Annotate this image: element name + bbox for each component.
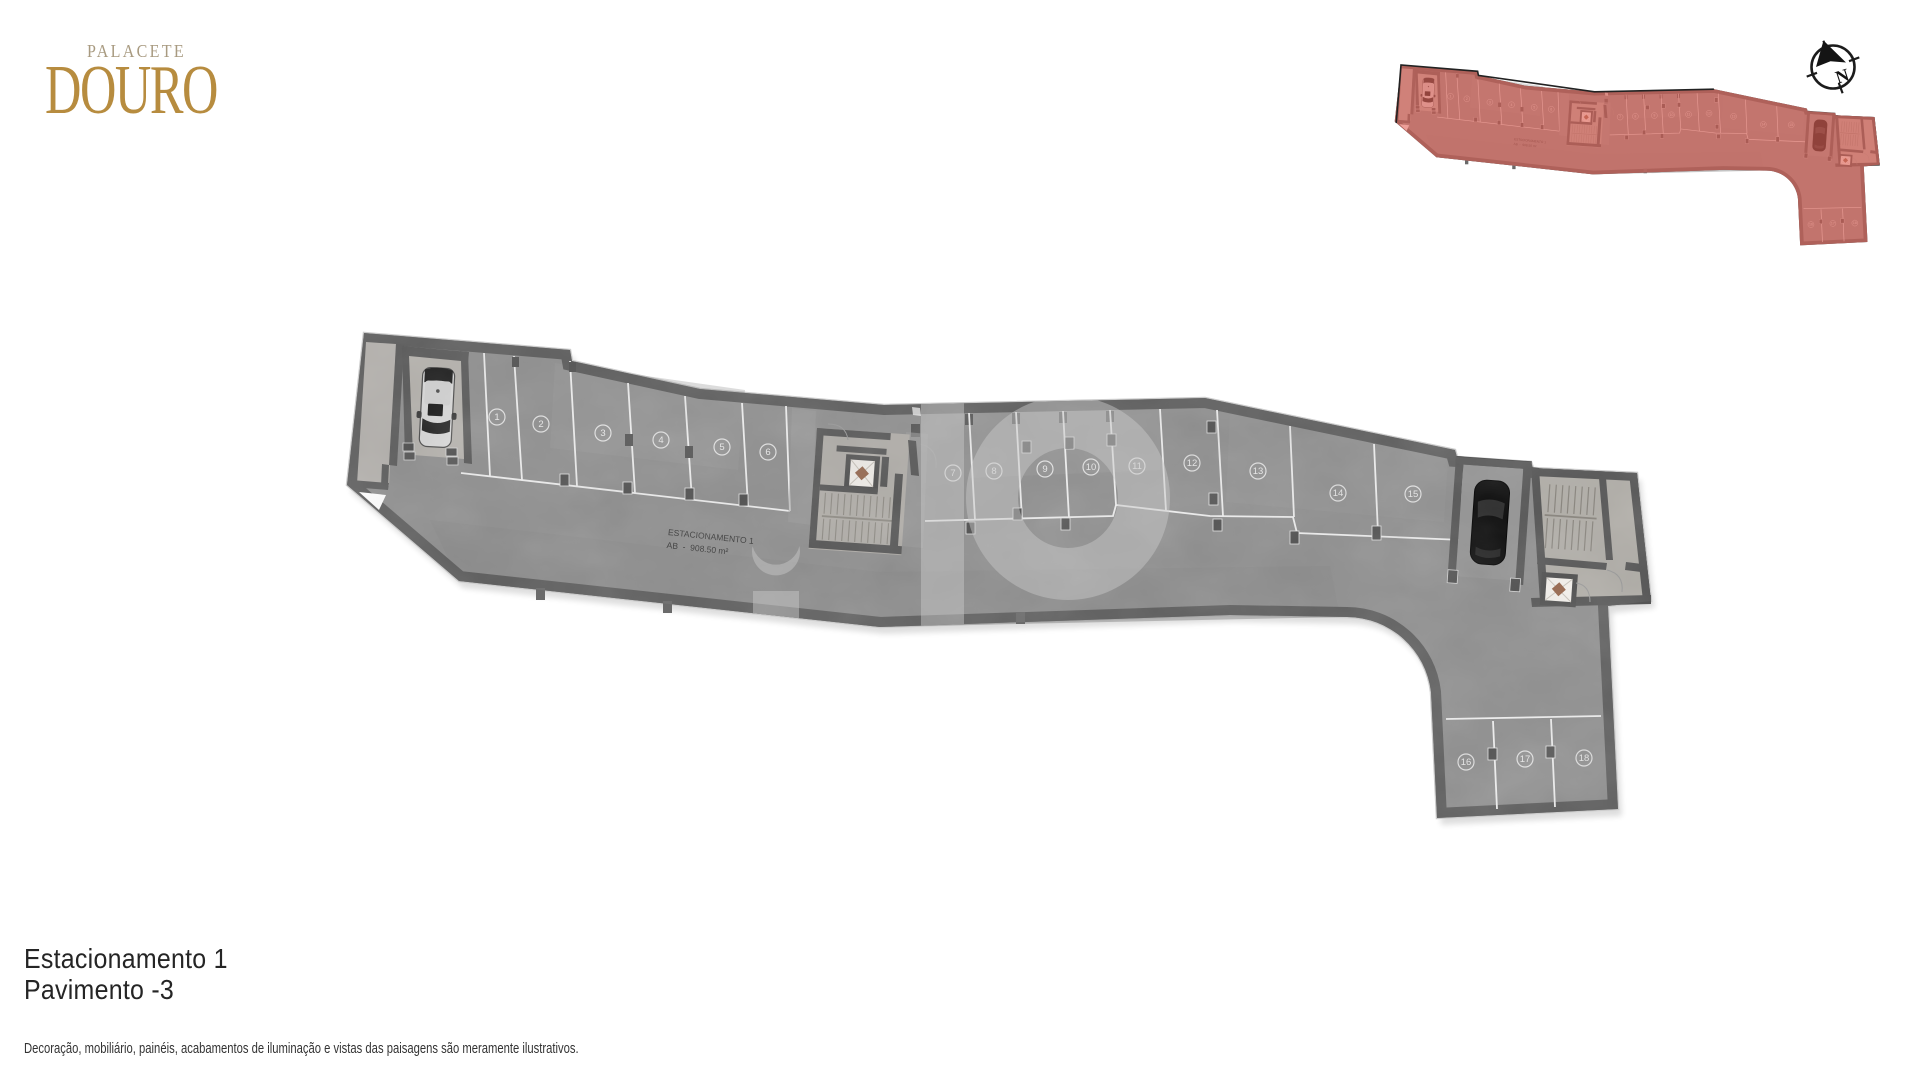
svg-text:N: N xyxy=(1833,65,1852,88)
